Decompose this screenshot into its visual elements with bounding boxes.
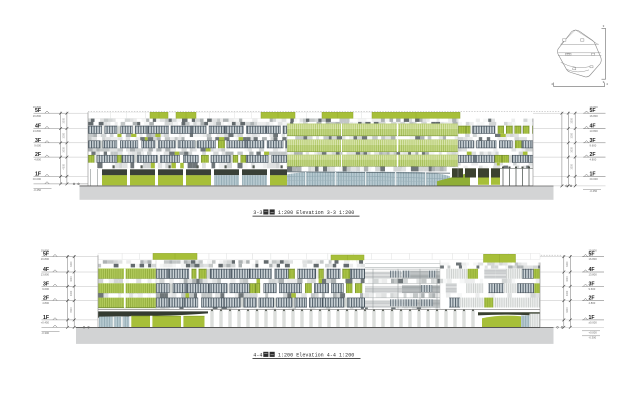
svg-text:19.800: 19.800 — [33, 105, 42, 109]
svg-text:16.800: 16.800 — [590, 114, 599, 118]
svg-text:13.800: 13.800 — [41, 273, 50, 277]
svg-text:4500: 4500 — [70, 307, 73, 313]
svg-text:9.600: 9.600 — [589, 287, 596, 291]
svg-text:4.800: 4.800 — [42, 301, 49, 305]
svg-text:-0.450: -0.450 — [33, 188, 41, 192]
svg-text:13.800: 13.800 — [33, 129, 42, 133]
svg-text:3000: 3000 — [566, 307, 569, 313]
svg-text:3000: 3000 — [70, 276, 73, 282]
svg-text:9.600: 9.600 — [34, 143, 41, 147]
svg-text:3000: 3000 — [571, 163, 574, 169]
svg-text:±0.000: ±0.000 — [589, 321, 598, 325]
svg-text:3-3: 3-3 — [253, 210, 262, 216]
svg-text:-0.300: -0.300 — [41, 331, 49, 335]
svg-text:3000: 3000 — [70, 290, 73, 296]
svg-text:19.800: 19.800 — [589, 248, 598, 252]
svg-text:4-4: 4-4 — [253, 352, 262, 358]
svg-text:16.800: 16.800 — [41, 257, 50, 261]
svg-text:1:200 Elevation 3-3 1:200: 1:200 Elevation 3-3 1:200 — [278, 210, 354, 216]
svg-text:16.800: 16.800 — [589, 257, 598, 261]
svg-text:3000: 3000 — [571, 117, 574, 123]
svg-text:+0.000: +0.000 — [589, 331, 598, 335]
svg-text:4.800: 4.800 — [589, 301, 596, 305]
svg-text:4500: 4500 — [63, 163, 66, 169]
svg-text:3000: 3000 — [63, 132, 66, 138]
svg-text:9.600: 9.600 — [590, 143, 597, 147]
svg-text:1:200 Elevation 4-4 1:200: 1:200 Elevation 4-4 1:200 — [278, 352, 354, 358]
svg-text:13.800: 13.800 — [589, 273, 598, 277]
svg-text:4.800: 4.800 — [34, 158, 41, 162]
svg-text:3000: 3000 — [571, 147, 574, 153]
svg-text:±0.000: ±0.000 — [590, 177, 599, 181]
svg-text:-0.300: -0.300 — [589, 336, 597, 340]
svg-text:3000: 3000 — [566, 276, 569, 282]
svg-text:±0.000: ±0.000 — [33, 177, 42, 181]
svg-text:3000: 3000 — [63, 147, 66, 153]
svg-text:-0.450: -0.450 — [590, 189, 598, 193]
svg-text:+0.450: +0.450 — [41, 321, 50, 325]
svg-text:3000: 3000 — [566, 290, 569, 296]
svg-text:3000: 3000 — [63, 117, 66, 123]
svg-text:3000: 3000 — [566, 261, 569, 267]
svg-text:3000: 3000 — [571, 132, 574, 138]
svg-text:13.800: 13.800 — [590, 129, 599, 133]
svg-text:9.600: 9.600 — [42, 287, 49, 291]
svg-text:19.800: 19.800 — [41, 248, 50, 252]
svg-text:4.800: 4.800 — [590, 158, 597, 162]
svg-text:16.800: 16.800 — [33, 114, 42, 118]
svg-text:3000: 3000 — [70, 261, 73, 267]
svg-text:19.800: 19.800 — [590, 105, 599, 109]
